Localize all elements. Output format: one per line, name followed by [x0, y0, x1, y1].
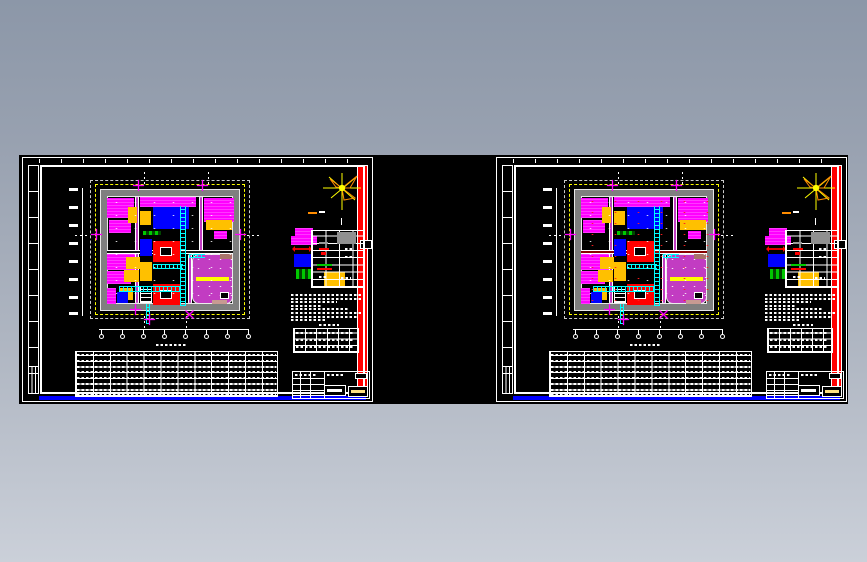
north-arrow-icon	[319, 172, 365, 218]
schedule-row-text	[551, 389, 750, 391]
equipment-block-orange	[140, 211, 151, 225]
legend-text	[345, 248, 353, 250]
equipment-block-orange	[680, 220, 706, 230]
cable-tray-riser	[620, 304, 624, 324]
axis-bubble	[636, 334, 641, 339]
app-background	[0, 0, 867, 562]
orange-dash	[308, 212, 317, 214]
dimension-text	[543, 278, 552, 281]
dimension-text	[69, 296, 78, 299]
grid-line	[144, 316, 145, 328]
plan-caption	[156, 344, 186, 346]
equipment-block-magenta	[140, 197, 196, 207]
dimension-text	[69, 188, 78, 191]
schedule-row-text	[77, 366, 276, 368]
cable-tray	[153, 264, 183, 269]
axis-bubble	[720, 334, 725, 339]
dimension-text	[543, 242, 552, 245]
grid-line	[144, 170, 145, 184]
legend-text	[345, 256, 353, 258]
equipment-block-orange	[598, 270, 613, 282]
table-heading	[793, 324, 813, 326]
equipment-block-orange	[140, 262, 152, 281]
legend-mark-red	[319, 248, 329, 250]
title-block-divider	[766, 378, 798, 379]
schedule-row-text	[77, 389, 276, 391]
dimension-text	[543, 312, 552, 315]
equipment-block-orange	[614, 211, 625, 225]
dimension-text	[69, 206, 78, 209]
margin-corner-cells	[28, 366, 39, 394]
title-block-divider	[292, 384, 324, 385]
table-heading	[319, 324, 339, 326]
axis-bubble	[225, 334, 230, 339]
note-line	[291, 319, 325, 321]
margin-scale-left	[28, 165, 39, 394]
schedule-row-text	[551, 377, 750, 379]
dimension-text	[543, 188, 552, 191]
schedule-row-text	[551, 360, 750, 362]
note-line	[765, 312, 835, 314]
schedule-row-text	[77, 371, 276, 373]
grid-line	[660, 316, 661, 328]
equipment-block-blue	[117, 292, 128, 303]
schedule-row-text	[77, 383, 276, 385]
yellow-bar	[670, 277, 703, 281]
grid-line	[721, 235, 735, 236]
margin-scale-left	[502, 165, 513, 394]
grid-line	[208, 170, 209, 184]
planting-strip-green	[617, 231, 635, 235]
note-line	[765, 298, 837, 300]
note-line	[765, 308, 823, 310]
mini-table-text	[296, 332, 354, 334]
title-block-divider	[292, 395, 324, 396]
note-line	[765, 319, 799, 321]
equipment-block-magenta	[581, 288, 590, 304]
dimension-line-left	[556, 188, 557, 316]
schedule-row-text	[77, 377, 276, 379]
axis-bubble	[204, 334, 209, 339]
legend-mark-red	[321, 252, 326, 255]
grid-line	[618, 316, 619, 328]
equipment-label-box	[694, 292, 703, 299]
title-block-divider	[766, 395, 798, 396]
equipment-block-orange	[126, 257, 140, 269]
partition-wall	[673, 196, 677, 252]
equipment-block-orange	[206, 220, 232, 230]
frame-tick-marks-top	[513, 159, 840, 163]
equipment-block-orange	[124, 270, 139, 282]
grid-line	[618, 170, 619, 184]
frame-tick-marks-top	[39, 159, 366, 163]
plan-caption	[630, 344, 660, 346]
mini-table-text	[770, 332, 828, 334]
axis-bubble	[141, 334, 146, 339]
equipment-block-magenta	[688, 231, 701, 239]
axis-bubble	[615, 334, 620, 339]
title-block-divider	[292, 378, 324, 379]
planting-strip-green	[143, 231, 161, 235]
note-line	[291, 301, 337, 303]
legend-symbol-green	[296, 269, 311, 279]
note-line	[291, 294, 365, 296]
title-block-divider	[766, 384, 798, 385]
dimension-text	[543, 260, 552, 263]
title-block-text	[769, 374, 791, 376]
brown-accent	[212, 300, 227, 304]
title-block-text	[295, 374, 317, 376]
dimension-text	[543, 296, 552, 299]
mini-table-text	[296, 346, 354, 348]
equipment-block-orange	[600, 257, 614, 269]
schedule-row-text	[551, 383, 750, 385]
grid-line	[247, 235, 261, 236]
title-block-cell	[829, 373, 841, 379]
north-arrow-icon	[793, 172, 839, 218]
dimension-text	[69, 242, 78, 245]
axis-bubble	[594, 334, 599, 339]
grid-line	[186, 316, 187, 328]
cable-tray-riser	[146, 304, 150, 324]
dimension-text	[69, 260, 78, 263]
legend-text	[793, 276, 801, 278]
yellow-bar	[196, 277, 229, 281]
axis-bubble	[99, 334, 104, 339]
model-space-canvas[interactable]	[19, 155, 848, 404]
note-line	[765, 305, 795, 307]
equipment-block-magenta	[678, 198, 708, 222]
tiny-label	[793, 211, 799, 213]
legend-mark-red	[317, 268, 332, 270]
schedule-row-text	[77, 360, 276, 362]
legend-mark-green	[317, 264, 332, 266]
grid-line	[682, 170, 683, 184]
axis-bubble	[162, 334, 167, 339]
legend-mark	[793, 242, 802, 244]
cable-tray	[189, 254, 205, 258]
legend-mark-green	[791, 264, 806, 266]
equipment-label-box	[220, 292, 229, 299]
mini-table-text	[770, 346, 828, 348]
axis-bubble	[573, 334, 578, 339]
schedule-row-text	[551, 371, 750, 373]
legend-mark-red	[793, 248, 803, 250]
legend-text	[341, 277, 351, 279]
drawing-sheet	[22, 157, 373, 402]
brown-accent	[686, 300, 701, 304]
orange-dash	[782, 212, 791, 214]
legend-text	[819, 248, 827, 250]
partition-wall	[199, 196, 203, 252]
equipment-block-blue	[591, 292, 602, 303]
tiny-label	[319, 211, 325, 213]
axis-bubble	[120, 334, 125, 339]
dimension-line-left	[82, 188, 83, 316]
note-line	[765, 301, 811, 303]
schedule-row-text	[77, 354, 276, 356]
title-block-cell	[355, 373, 367, 379]
sheet-2-lighting-plan[interactable]	[496, 157, 847, 402]
cable-tray	[119, 286, 181, 292]
legend-text	[319, 276, 327, 278]
equipment-block-blue	[614, 239, 626, 256]
legend-mark	[319, 242, 328, 244]
drawing-title-text	[801, 389, 816, 392]
legend-text	[819, 256, 827, 258]
equipment-block-magenta	[204, 198, 234, 222]
north-tick	[815, 218, 816, 225]
note-line	[291, 308, 349, 310]
equipment-block-orange	[128, 207, 137, 223]
axis-bubble	[246, 334, 251, 339]
legend-mark-red	[791, 268, 806, 270]
note-line	[765, 294, 839, 296]
note-line	[291, 312, 361, 314]
equipment-block-blue	[140, 239, 152, 256]
title-block-divider	[292, 390, 324, 391]
schedule-row-text	[77, 394, 276, 396]
axis-bubble	[657, 334, 662, 339]
title-block-divider	[766, 390, 798, 391]
brown-accent	[694, 254, 706, 259]
drawing-title-text	[327, 389, 342, 392]
drawing-number-text	[825, 390, 839, 393]
cable-tray	[593, 286, 655, 292]
dimension-text	[69, 224, 78, 227]
note-line	[291, 305, 321, 307]
mini-table-text	[770, 339, 828, 341]
note-line	[765, 316, 831, 318]
dimension-text	[543, 224, 552, 227]
equipment-block-orange	[614, 262, 626, 281]
legend-text	[815, 277, 825, 279]
machine-block-red	[627, 241, 654, 262]
equipment-block-orange	[602, 207, 611, 223]
note-line	[291, 298, 363, 300]
dimension-text	[69, 312, 78, 315]
title-block-text	[327, 374, 343, 376]
margin-corner-cells	[502, 366, 513, 394]
legend-mark-red	[795, 252, 800, 255]
dimension-text	[543, 206, 552, 209]
axis-bubble	[678, 334, 683, 339]
cable-tray	[663, 254, 679, 258]
axis-bubble	[699, 334, 704, 339]
schedule-row-text	[551, 394, 750, 396]
mini-table-text	[296, 339, 354, 341]
axis-bubble	[183, 334, 188, 339]
dimension-text	[69, 278, 78, 281]
legend-gray-cell	[811, 232, 830, 244]
note-line	[291, 316, 357, 318]
schedule-row-text	[551, 366, 750, 368]
equipment-block-magenta	[614, 197, 670, 207]
sheet-1-power-plan[interactable]	[22, 157, 373, 402]
legend-symbol-green	[770, 269, 785, 279]
north-tick	[341, 218, 342, 225]
cable-tray	[627, 264, 657, 269]
equipment-block-magenta	[214, 231, 227, 239]
equipment-block-magenta	[107, 288, 116, 304]
schedule-row-text	[551, 354, 750, 356]
machine-block-red	[153, 241, 180, 262]
title-block-text	[801, 374, 817, 376]
brown-accent	[220, 254, 232, 259]
drawing-sheet	[496, 157, 847, 402]
legend-gray-cell	[337, 232, 356, 244]
drawing-number-text	[351, 390, 365, 393]
